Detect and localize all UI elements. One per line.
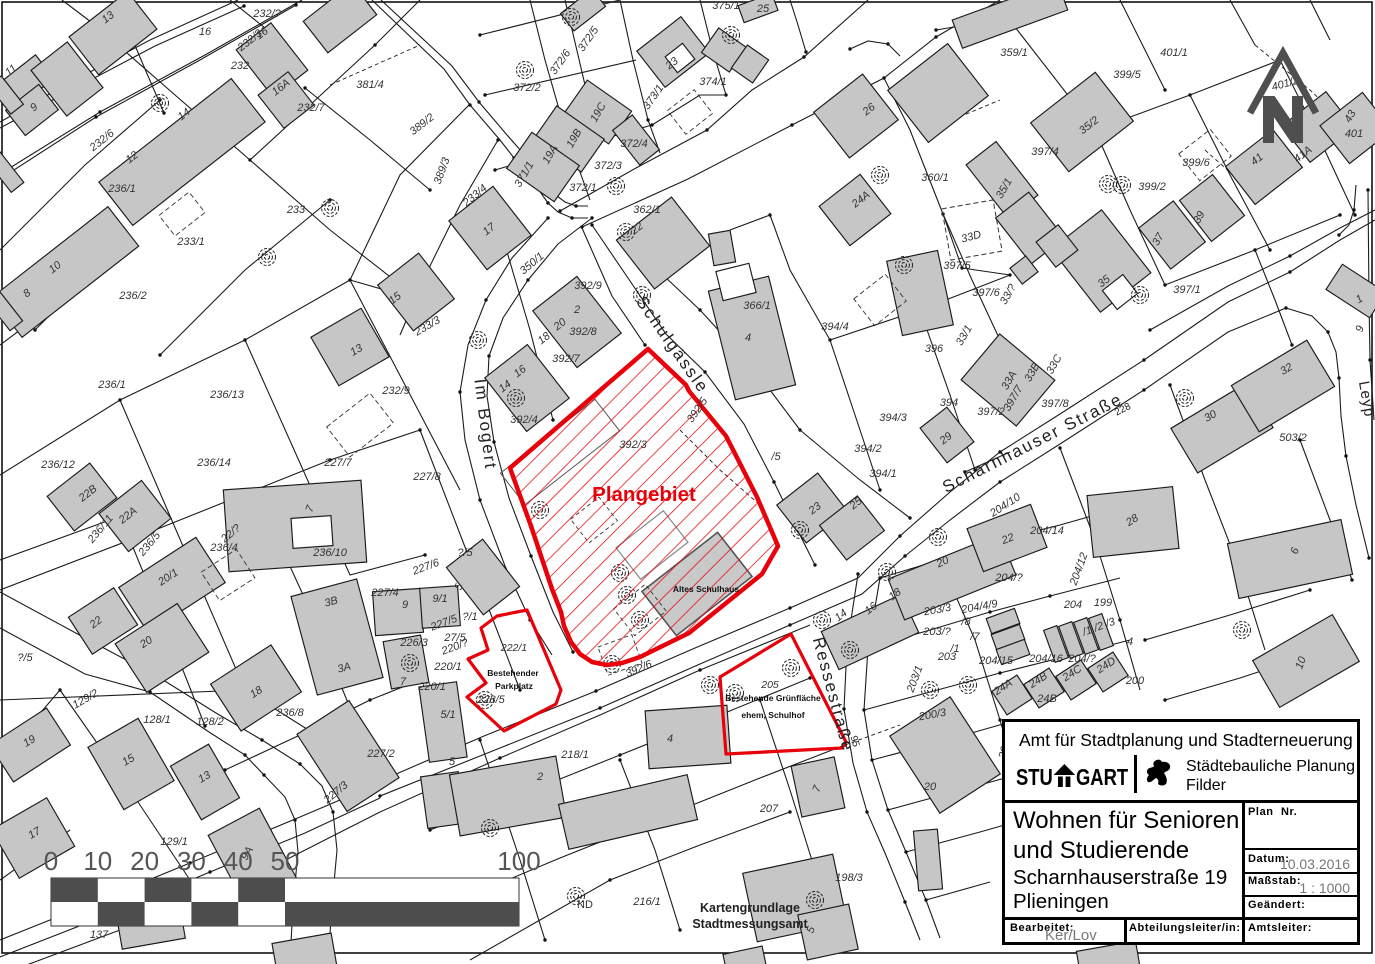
svg-text:204: 204: [1063, 599, 1082, 611]
svg-text:?/1: ?/1: [462, 611, 477, 623]
svg-text:399/2: 399/2: [1138, 181, 1166, 193]
svg-text:232: 232: [230, 60, 249, 72]
svg-text:4: 4: [745, 332, 751, 344]
svg-text:220/1: 220/1: [417, 681, 446, 693]
svg-text:?/5: ?/5: [17, 652, 33, 664]
svg-text:30: 30: [177, 846, 206, 876]
svg-text:397/5: 397/5: [943, 260, 971, 272]
svg-text:232/7: 232/7: [296, 102, 325, 114]
svg-text:227/7: 227/7: [323, 457, 352, 469]
svg-text:199: 199: [1094, 597, 1112, 609]
svg-text:207: 207: [759, 803, 779, 815]
svg-text:204/16: 204/16: [1028, 653, 1064, 665]
svg-text:236/10: 236/10: [312, 547, 348, 559]
svg-text:ehem, Schulhof: ehem, Schulhof: [741, 710, 804, 720]
svg-text:4: 4: [1127, 636, 1133, 648]
svg-text:394: 394: [940, 397, 958, 409]
svg-text:5/1: 5/1: [440, 709, 455, 721]
svg-text:233: 233: [286, 204, 306, 216]
svg-text:228/5: 228/5: [476, 694, 505, 706]
svg-text:/5: /5: [770, 451, 781, 463]
svg-text:236/4: 236/4: [209, 542, 238, 554]
svg-text:204/?: 204/?: [994, 572, 1023, 584]
svg-text:503/2: 503/2: [1279, 432, 1307, 444]
svg-text:227/8: 227/8: [412, 471, 441, 483]
svg-text:396: 396: [925, 343, 944, 355]
svg-text:0: 0: [44, 846, 58, 876]
svg-text:216/1: 216/1: [632, 896, 661, 908]
svg-text:205: 205: [760, 679, 779, 691]
svg-text:236/13: 236/13: [209, 389, 245, 401]
svg-text:Bestehender: Bestehender: [487, 668, 539, 678]
svg-text:372/2: 372/2: [513, 82, 541, 94]
svg-text:392/4: 392/4: [510, 414, 538, 426]
svg-text:394/3: 394/3: [879, 412, 907, 424]
svg-text:204/15: 204/15: [978, 655, 1014, 667]
svg-text:232/9: 232/9: [381, 385, 410, 397]
svg-text:16: 16: [199, 26, 212, 38]
svg-text:25: 25: [756, 3, 770, 15]
svg-text:220/1: 220/1: [433, 661, 462, 673]
svg-text:24B: 24B: [1036, 693, 1057, 705]
svg-text:392/3: 392/3: [619, 439, 647, 451]
svg-text:372/4: 372/4: [620, 138, 648, 150]
svg-text:381/4: 381/4: [356, 79, 384, 91]
svg-text:236/1: 236/1: [107, 183, 136, 195]
svg-text:372/3: 372/3: [594, 160, 622, 172]
svg-text:226/3: 226/3: [399, 637, 428, 649]
svg-text:198/3: 198/3: [835, 872, 863, 884]
svg-text:360/1: 360/1: [921, 172, 949, 184]
svg-text:/8: /8: [960, 616, 971, 628]
svg-text:236/2: 236/2: [118, 290, 147, 302]
svg-text:392/8: 392/8: [569, 326, 597, 338]
svg-text:236/14: 236/14: [196, 457, 231, 469]
svg-text:394/4: 394/4: [821, 321, 849, 333]
svg-text:374/1: 374/1: [699, 76, 727, 88]
svg-text:227/2: 227/2: [366, 748, 395, 760]
svg-text:5: 5: [449, 756, 456, 768]
svg-text:227/4: 227/4: [370, 587, 399, 599]
svg-text:397/8: 397/8: [1041, 398, 1069, 410]
svg-text:204/14: 204/14: [1029, 525, 1064, 537]
svg-text:9/1: 9/1: [432, 593, 447, 605]
svg-text:399/6: 399/6: [1182, 157, 1210, 169]
svg-text:Stadtmessungsamt: Stadtmessungsamt: [692, 917, 808, 931]
svg-text:Altes Schulhaus: Altes Schulhaus: [673, 584, 739, 594]
svg-text:7: 7: [400, 676, 407, 688]
svg-text:392/9: 392/9: [574, 280, 602, 292]
svg-text:137: 137: [90, 929, 109, 941]
svg-text:128/1: 128/1: [143, 714, 171, 726]
svg-text:233/1: 233/1: [176, 236, 205, 248]
svg-text:203/?: 203/?: [922, 626, 951, 638]
svg-text:236/1: 236/1: [97, 379, 126, 391]
svg-text:128/2: 128/2: [196, 716, 224, 728]
svg-text:222/1: 222/1: [500, 642, 527, 654]
svg-text:/7: /7: [969, 631, 980, 643]
svg-text:Kartengrundlage: Kartengrundlage: [700, 901, 800, 915]
svg-text:397/1: 397/1: [1173, 284, 1201, 296]
svg-text:401/1: 401/1: [1160, 47, 1188, 59]
svg-text:2: 2: [536, 771, 543, 783]
svg-text:394/2: 394/2: [854, 443, 882, 455]
svg-text:Parkplatz: Parkplatz: [495, 681, 533, 691]
svg-text:4: 4: [667, 733, 673, 745]
svg-text:232/?: 232/?: [252, 8, 281, 20]
svg-text:100: 100: [497, 846, 540, 876]
svg-text:394/1: 394/1: [869, 468, 897, 480]
svg-text:397/4: 397/4: [1031, 146, 1059, 158]
svg-text:20: 20: [130, 846, 159, 876]
svg-text:236/12: 236/12: [40, 459, 75, 471]
svg-text:366/1: 366/1: [743, 300, 771, 312]
svg-text:27/5: 27/5: [443, 632, 466, 644]
svg-text:200: 200: [1125, 675, 1145, 687]
svg-text:Plangebiet: Plangebiet: [592, 483, 696, 506]
svg-text:20: 20: [923, 781, 937, 793]
svg-text:50: 50: [271, 846, 300, 876]
svg-text:362/1: 362/1: [633, 204, 661, 216]
svg-text:375/1: 375/1: [712, 0, 740, 12]
svg-text:10: 10: [83, 846, 112, 876]
svg-text:372/1: 372/1: [569, 182, 597, 194]
svg-text:359/1: 359/1: [1000, 47, 1028, 59]
svg-text:9: 9: [402, 599, 408, 611]
svg-text:399/5: 399/5: [1113, 69, 1141, 81]
svg-text:392/7: 392/7: [552, 353, 580, 365]
svg-text:218/1: 218/1: [560, 749, 589, 761]
svg-text:?/5: ?/5: [457, 547, 473, 559]
svg-text:397/6: 397/6: [972, 287, 1000, 299]
svg-text:ND: ND: [577, 899, 593, 911]
svg-text:204/?: 204/?: [1067, 653, 1096, 665]
svg-text:40: 40: [224, 846, 253, 876]
svg-text:/1: /1: [949, 643, 959, 655]
svg-text:236/8: 236/8: [275, 707, 304, 719]
svg-text:Bestehende Grünfläche: Bestehende Grünfläche: [725, 693, 821, 703]
svg-text:401: 401: [1345, 128, 1363, 140]
svg-text:2: 2: [573, 304, 580, 316]
